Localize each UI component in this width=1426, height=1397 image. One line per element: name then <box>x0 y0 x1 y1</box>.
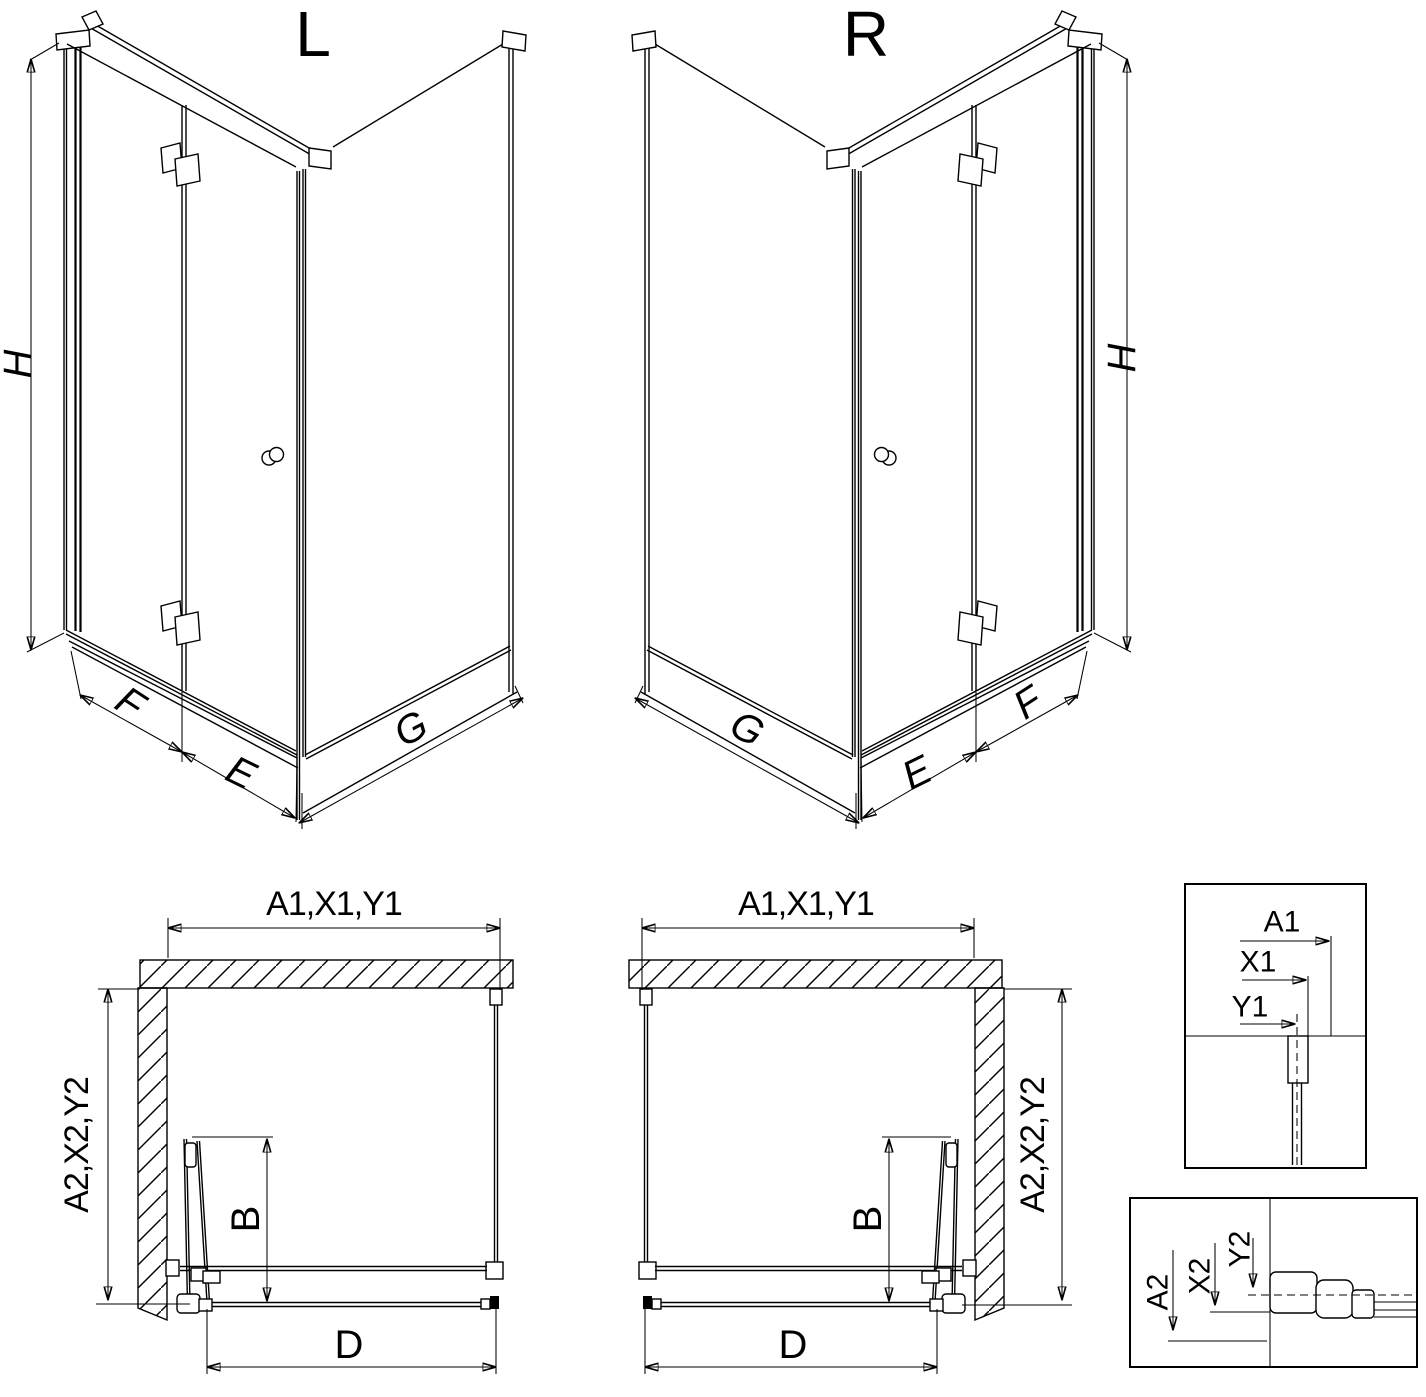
plan-right-b-label: B <box>846 1206 890 1233</box>
view-label-r: R <box>843 0 889 70</box>
plan-right-depth-label: A2,X2,Y2 <box>1014 1077 1052 1213</box>
dim-label-h-left: H <box>0 349 40 378</box>
plan-right-d-label: D <box>779 1323 808 1367</box>
view-label-l: L <box>295 0 331 70</box>
dim-label-e-left: E <box>219 747 263 799</box>
dim-label-f-left: F <box>108 678 155 730</box>
plan-right-width-label: A1,X1,Y1 <box>738 885 874 923</box>
profile-detail-top: A1 X1 Y1 <box>1185 884 1366 1168</box>
plan-left-depth-label: A2,X2,Y2 <box>58 1077 96 1213</box>
dim-label-e-right: E <box>895 747 939 799</box>
wall-hatch-side-right <box>975 988 1004 1320</box>
enclosure-geometry-left <box>27 11 526 829</box>
dim-label-g-left: G <box>387 702 435 755</box>
detail-top-x1-label: X1 <box>1240 946 1277 979</box>
plan-view-left: A1,X1,Y1 A2,X2,Y2 B D <box>58 885 513 1374</box>
dim-label-h-right: H <box>1100 343 1144 372</box>
plan-left-width-label: A1,X1,Y1 <box>266 885 402 923</box>
shower-enclosure-technical-drawing: L H F E G R H F E G A1,X1,Y1 A2,X2,Y2 B … <box>0 0 1426 1397</box>
wall-hatch-top-right <box>629 960 1002 988</box>
plan-view-right: A1,X1,Y1 A2,X2,Y2 B D <box>629 885 1072 1374</box>
detail-bottom-a2-label: A2 <box>1142 1274 1175 1311</box>
detail-top-y1-label: Y1 <box>1232 991 1269 1024</box>
wall-hatch-top-left <box>140 960 513 988</box>
detail-top-a1-label: A1 <box>1264 906 1301 939</box>
perspective-view-right: R H F E G <box>632 0 1144 829</box>
plan-left-b-label: B <box>224 1206 268 1233</box>
plan-enclosure-left <box>166 989 503 1313</box>
plan-enclosure-right <box>639 989 976 1313</box>
profile-detail-bottom: A2 X2 Y2 <box>1130 1198 1417 1367</box>
perspective-view-left: L H F E G <box>0 0 526 829</box>
plan-left-d-label: D <box>335 1323 364 1367</box>
detail-bottom-y2-label: Y2 <box>1224 1231 1257 1268</box>
enclosure-geometry-right <box>632 11 1131 829</box>
dim-label-f-right: F <box>1006 676 1053 728</box>
wall-hatch-side-left <box>138 988 167 1320</box>
drawing-sheet: L H F E G R H F E G A1,X1,Y1 A2,X2,Y2 B … <box>0 0 1426 1397</box>
dim-label-g-right: G <box>723 702 771 755</box>
detail-bottom-x2-label: X2 <box>1184 1258 1217 1295</box>
